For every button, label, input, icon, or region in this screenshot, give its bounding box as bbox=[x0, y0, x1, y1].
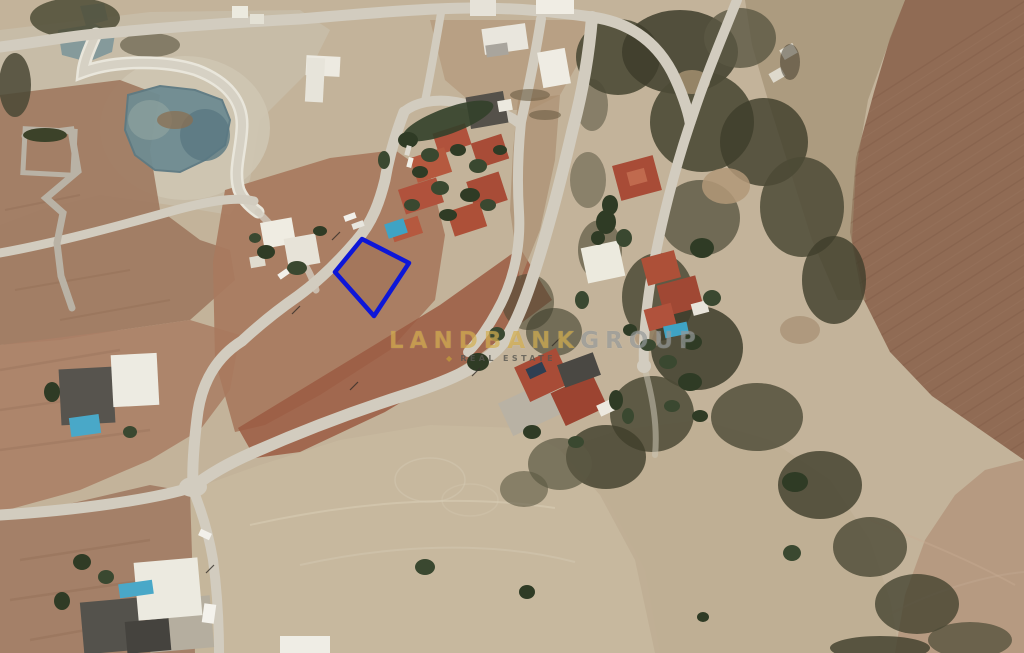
trees bbox=[622, 408, 634, 424]
diamond-icon: ◆ bbox=[446, 354, 454, 363]
white-villa bbox=[111, 353, 160, 407]
lone-tree bbox=[783, 545, 801, 561]
trees bbox=[404, 199, 420, 211]
scrub-vegetation bbox=[711, 383, 803, 451]
trees bbox=[568, 436, 584, 448]
trees bbox=[378, 151, 390, 169]
lone-tree bbox=[519, 585, 535, 599]
satellite-photo: LANDBANKGROUP ◆ REAL ESTATE bbox=[0, 0, 1024, 653]
trees bbox=[431, 181, 449, 195]
scrub-vegetation bbox=[702, 168, 750, 204]
lone-tree bbox=[782, 472, 808, 492]
scrub-vegetation bbox=[500, 471, 548, 507]
trees bbox=[439, 209, 457, 221]
trees bbox=[523, 425, 541, 439]
trees bbox=[678, 373, 702, 391]
scrub-vegetation bbox=[570, 152, 606, 208]
buildings bbox=[250, 14, 264, 24]
trees bbox=[421, 148, 439, 162]
trees bbox=[690, 238, 714, 258]
trees bbox=[313, 226, 327, 236]
trees bbox=[469, 159, 487, 173]
trees bbox=[98, 570, 114, 584]
trees bbox=[257, 245, 275, 259]
trees bbox=[287, 261, 307, 275]
buildings bbox=[125, 618, 172, 653]
scrub-vegetation bbox=[780, 316, 820, 344]
satellite-map-canvas bbox=[0, 0, 1024, 653]
trees bbox=[44, 382, 60, 402]
trees bbox=[703, 290, 721, 306]
lone-tree bbox=[415, 559, 435, 575]
trees bbox=[529, 110, 561, 120]
watermark-tagline: ◆ REAL ESTATE bbox=[446, 354, 556, 363]
white-building bbox=[280, 636, 330, 653]
trees bbox=[54, 592, 70, 610]
trees bbox=[510, 89, 550, 101]
trees bbox=[591, 231, 605, 245]
buildings bbox=[780, 44, 800, 80]
trees bbox=[616, 229, 632, 247]
trees bbox=[23, 128, 67, 142]
road-junction bbox=[179, 477, 207, 497]
buildings bbox=[305, 58, 325, 103]
watermark-brand: LANDBANKGROUP bbox=[389, 330, 702, 353]
roads bbox=[637, 359, 651, 373]
trees bbox=[450, 144, 466, 156]
trees bbox=[609, 390, 623, 410]
lone-tree bbox=[697, 612, 709, 622]
trees bbox=[460, 188, 480, 202]
trees bbox=[659, 355, 677, 369]
watermark-tagline-text: REAL ESTATE bbox=[460, 354, 556, 363]
scrub-vegetation bbox=[0, 53, 31, 117]
trees bbox=[493, 145, 507, 155]
trees bbox=[480, 199, 496, 211]
trees bbox=[575, 291, 589, 309]
watermark-brand-secondary: GROUP bbox=[580, 328, 702, 354]
trees bbox=[123, 426, 137, 438]
buildings bbox=[232, 6, 248, 18]
white-building bbox=[536, 0, 574, 14]
scrub-vegetation bbox=[802, 236, 866, 324]
scrub-vegetation bbox=[833, 517, 907, 577]
trees bbox=[249, 233, 261, 243]
trees bbox=[73, 554, 91, 570]
watermark-brand-primary: LANDBANK bbox=[389, 328, 580, 354]
trees bbox=[664, 400, 680, 412]
trees bbox=[412, 166, 428, 178]
scrub-vegetation bbox=[120, 33, 180, 57]
white-building bbox=[470, 0, 496, 16]
water bbox=[157, 111, 193, 129]
scrub-vegetation bbox=[875, 574, 959, 634]
trees bbox=[692, 410, 708, 422]
trees bbox=[602, 195, 618, 215]
